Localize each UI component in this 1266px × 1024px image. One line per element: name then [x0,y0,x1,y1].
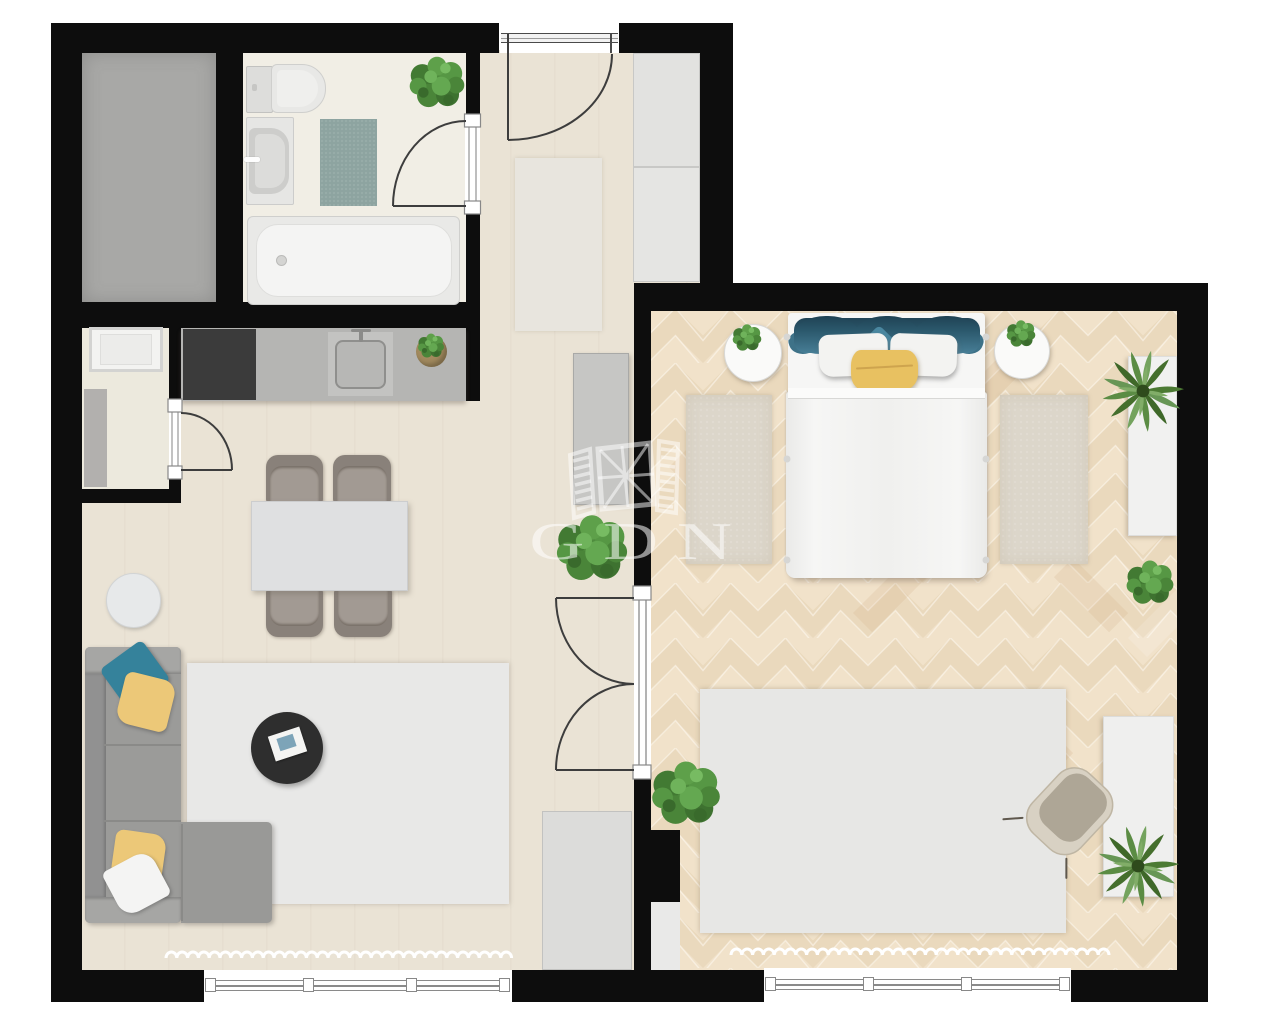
svg-text:GDN: GDN [529,512,750,571]
